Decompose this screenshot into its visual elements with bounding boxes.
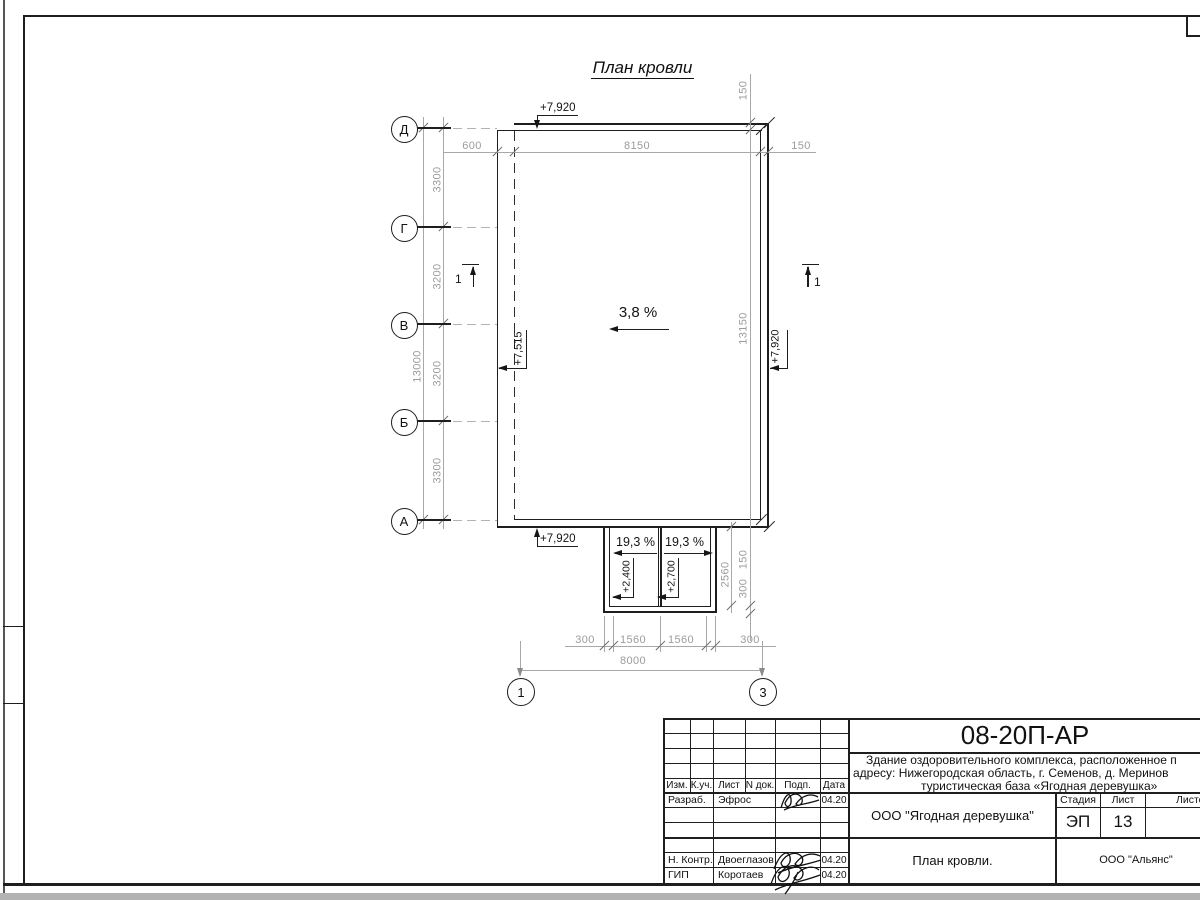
drawing-sheet: План кровли xyxy=(0,0,1200,900)
dim-label: 2560 xyxy=(720,546,733,602)
elevation-arrow xyxy=(657,594,666,600)
axis-line-dash xyxy=(453,227,497,228)
elevation-arrow xyxy=(612,594,621,600)
elevation-arrow xyxy=(534,120,540,129)
elevation-leader xyxy=(633,558,634,597)
role-date: 04.20 xyxy=(820,868,848,882)
company-name: ООО "Ягодная деревушка" xyxy=(850,793,1055,837)
margin-cell-divider xyxy=(3,703,23,704)
corner-box-line xyxy=(1186,15,1188,35)
elevation-leader xyxy=(537,115,578,116)
dim-line-canopy-chain xyxy=(565,646,776,647)
slope-label-canopy: 19,3 % xyxy=(612,535,659,549)
dim-label: 150 xyxy=(738,62,751,118)
axis-line xyxy=(416,420,451,421)
axis-bubble-col: 3 xyxy=(749,678,777,706)
axis-bubble-row: Г xyxy=(391,215,418,242)
role-label: ГИП xyxy=(664,868,717,882)
slope-label-main: 3,8 % xyxy=(612,304,664,321)
extension-arrow xyxy=(759,668,765,677)
dim-label: 3200 xyxy=(431,345,444,401)
project-description-line: адресу: Нижегородская область, г. Семено… xyxy=(853,766,1168,780)
canopy-edge-bottom-outer xyxy=(603,611,717,613)
dim-label: 8000 xyxy=(613,655,653,667)
sheet-title: План кровли. xyxy=(850,838,1055,882)
slope-arrow-line xyxy=(612,329,669,330)
elevation-mark: +7,920 xyxy=(540,102,576,114)
axis-bubble-row: Д xyxy=(391,116,418,143)
rev-header: Дата xyxy=(820,779,848,792)
roof-edge-top-inner xyxy=(514,130,762,131)
axis-label: 1 xyxy=(517,685,524,700)
slope-arrow xyxy=(704,550,713,556)
axis-line-dash xyxy=(453,324,497,325)
canopy-edge-right-outer xyxy=(715,528,717,613)
roof-edge-top-left xyxy=(497,130,515,131)
signature xyxy=(765,856,823,898)
elevation-arrow xyxy=(534,528,540,537)
signature xyxy=(778,788,822,814)
elevation-arrow xyxy=(770,365,779,371)
dim-label: 600 xyxy=(452,140,492,152)
axis-label: В xyxy=(400,318,409,333)
frame-left xyxy=(23,15,25,884)
stage-value: ЭП xyxy=(1056,808,1100,836)
rev-header: N док. xyxy=(745,779,775,792)
dim-label: 3200 xyxy=(431,248,444,304)
role-label: Разраб. xyxy=(664,793,717,807)
stamp-line xyxy=(663,733,849,734)
axis-label: Д xyxy=(400,122,409,137)
roof-edge-top-outer xyxy=(514,123,769,125)
axis-label: 3 xyxy=(759,685,766,700)
axis-label: А xyxy=(400,514,409,529)
dim-label: 300 xyxy=(738,560,751,616)
axis-line-dash xyxy=(453,128,497,129)
canopy-edge-left-outer xyxy=(603,528,605,613)
screen-bottom-strip xyxy=(0,893,1200,900)
extension-line xyxy=(715,616,716,652)
slope-arrow xyxy=(609,326,618,332)
project-description-line: туристическая база «Ягодная деревушка» xyxy=(921,779,1157,793)
axis-line-dash xyxy=(453,421,497,422)
role-date: 04.20 xyxy=(820,793,848,807)
axis-line xyxy=(416,323,451,324)
dim-label: 300 xyxy=(730,634,770,646)
canopy-edge-right-inner xyxy=(710,528,711,607)
axis-line xyxy=(416,519,451,520)
elevation-mark: +7,920 xyxy=(540,533,576,545)
section-mark-arrow xyxy=(470,266,476,275)
elevation-leader xyxy=(537,546,578,547)
dim-label: 150 xyxy=(781,140,821,152)
drawing-title: План кровли xyxy=(560,58,725,78)
canopy-edge-left-inner xyxy=(609,528,610,607)
margin-cell-divider xyxy=(3,626,23,627)
role-label: Н. Контр. xyxy=(664,853,717,867)
dim-line-bottom-total xyxy=(520,670,762,671)
slope-label-canopy: 19,3 % xyxy=(661,535,708,549)
elevation-mark: +2,400 xyxy=(620,548,633,604)
stamp-line xyxy=(663,763,849,764)
dim-label: 3300 xyxy=(431,442,444,498)
axis-bubble-row: Б xyxy=(391,409,418,436)
dim-label: 13150 xyxy=(738,300,751,356)
sheet-header: Лист xyxy=(1101,793,1145,806)
dim-label: 13000 xyxy=(411,338,424,394)
extension-arrow xyxy=(517,668,523,677)
contractor-name: ООО "Альянс" xyxy=(1056,838,1200,882)
rev-header: К.уч. xyxy=(690,779,713,792)
section-mark-label: 1 xyxy=(814,275,821,289)
corner-box-line xyxy=(1186,35,1200,37)
stage-header: Стадия xyxy=(1056,793,1100,806)
elevation-mark: +2,700 xyxy=(665,548,678,604)
stamp-line xyxy=(663,822,849,823)
project-description-line: Здание оздоровительного комплекса, распо… xyxy=(866,753,1177,767)
section-mark-arrow xyxy=(805,266,811,275)
elevation-leader xyxy=(678,558,679,597)
frame-bottom xyxy=(3,883,1200,886)
roof-edge-left xyxy=(497,130,498,528)
axis-line xyxy=(416,226,451,227)
elevation-leader xyxy=(787,330,788,368)
doc-number: 08-20П-АР xyxy=(850,720,1200,751)
rev-header: Лист xyxy=(713,779,745,792)
axis-bubble-row: В xyxy=(391,312,418,339)
role-name: Эфрос xyxy=(714,793,779,807)
axis-line xyxy=(416,127,451,128)
axis-line-dash xyxy=(453,520,497,521)
axis-label: Б xyxy=(400,415,409,430)
roof-edge-right-inner xyxy=(760,130,761,521)
axis-label: Г xyxy=(400,221,407,236)
dim-label: 1560 xyxy=(613,634,653,646)
stamp-line xyxy=(663,748,849,749)
frame-top xyxy=(23,15,1200,17)
dim-label: 8150 xyxy=(607,140,667,152)
dim-label: 300 xyxy=(565,634,605,646)
sheet-number: 13 xyxy=(1101,808,1145,836)
roof-edge-bottom-inner xyxy=(514,519,762,520)
extension-line xyxy=(706,616,707,652)
role-date: 04.20 xyxy=(820,853,848,867)
axis-bubble-col: 1 xyxy=(507,678,535,706)
dim-label: 1560 xyxy=(661,634,701,646)
canopy-edge-bottom-inner xyxy=(609,606,712,607)
dim-label: 3300 xyxy=(431,151,444,207)
sheets-header: Листов xyxy=(1146,793,1200,806)
sheet-left-edge xyxy=(3,0,5,893)
elevation-arrow xyxy=(498,365,507,371)
axis-bubble-row: А xyxy=(391,508,418,535)
rev-header: Изм. xyxy=(664,779,690,792)
section-mark-label: 1 xyxy=(455,272,462,286)
elevation-leader xyxy=(526,330,527,368)
